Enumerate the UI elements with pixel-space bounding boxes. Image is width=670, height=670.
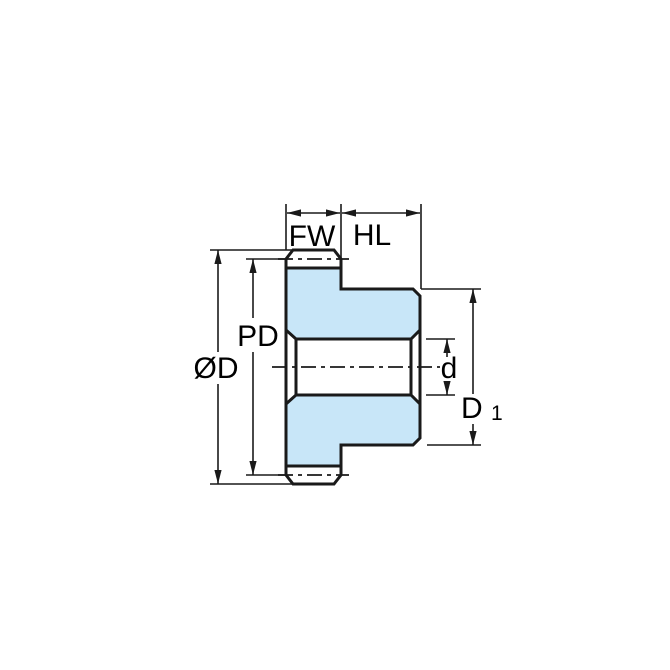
label-hub-diameter-base: D bbox=[461, 392, 483, 425]
gear-body-lower bbox=[286, 395, 420, 466]
label-hub-diameter-subscript: 1 bbox=[491, 402, 503, 425]
label-hub-diameter: D 1 bbox=[461, 392, 503, 425]
label-outside-diameter: ØD bbox=[194, 352, 239, 385]
label-face-width: FW bbox=[289, 220, 336, 253]
label-hub-length: HL bbox=[353, 219, 391, 252]
label-pitch-diameter: PD bbox=[237, 320, 279, 353]
gear-body-upper bbox=[286, 268, 420, 339]
label-bore-diameter: d bbox=[441, 352, 458, 385]
gear-dimension-diagram: FW HL PD ØD d D 1 bbox=[0, 0, 670, 670]
